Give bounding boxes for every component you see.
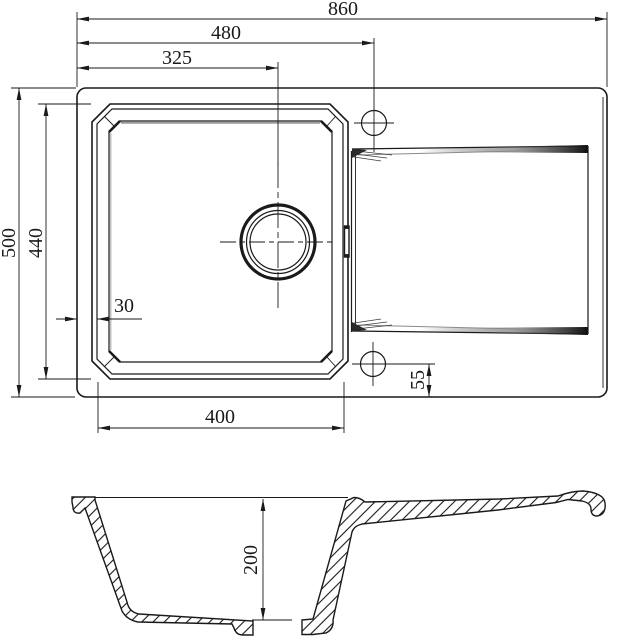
dimension-bowl-depth: 200 [240, 499, 292, 620]
top-view: 860 480 325 500 440 30 [0, 0, 607, 433]
technical-drawing-page: 860 480 325 500 440 30 [0, 0, 619, 642]
drainboard [352, 145, 589, 335]
dimension-overall-width: 860 [77, 0, 607, 87]
dim-bowl-depth-label: 200 [240, 545, 262, 575]
dim-overall-depth-label: 500 [0, 228, 20, 258]
drainboard-corner-dark-bottom [352, 322, 367, 331]
dim-bowl-outer-depth-label: 440 [25, 228, 47, 258]
dimension-tap-hole-from-left: 480 [77, 22, 374, 152]
dimension-rim-to-bowl-offset: 30 [56, 295, 142, 319]
dim-overall-width-label: 860 [328, 0, 358, 20]
dim-drain-from-left-label: 325 [162, 47, 192, 69]
drainboard-corner-fans [354, 151, 392, 329]
overflow-slot [344, 226, 350, 257]
sink-technical-drawing: 860 480 325 500 440 30 [0, 0, 619, 642]
bowl-corner-details [105, 117, 336, 367]
section-view: 200 [72, 491, 605, 635]
sink-outline [77, 88, 607, 397]
dim-bowl-inner-width-label: 400 [205, 406, 235, 428]
bowl-floor [109, 121, 332, 362]
dimension-tap-hole-to-edge: 55 [405, 364, 436, 397]
dim-rim-to-bowl-offset-label: 30 [114, 295, 134, 317]
dim-tap-hole-from-left-label: 480 [211, 22, 241, 44]
dimension-bowl-inner-width: 400 [98, 382, 344, 433]
dim-tap-hole-to-edge-label: 55 [407, 370, 429, 390]
section-bowl-left-wall [72, 497, 253, 635]
section-right-wall-and-drainboard [302, 491, 605, 635]
drain-opening [220, 162, 336, 312]
dimension-bowl-outer-depth: 440 [25, 104, 91, 379]
drainboard-corner-dark-top [352, 149, 367, 158]
